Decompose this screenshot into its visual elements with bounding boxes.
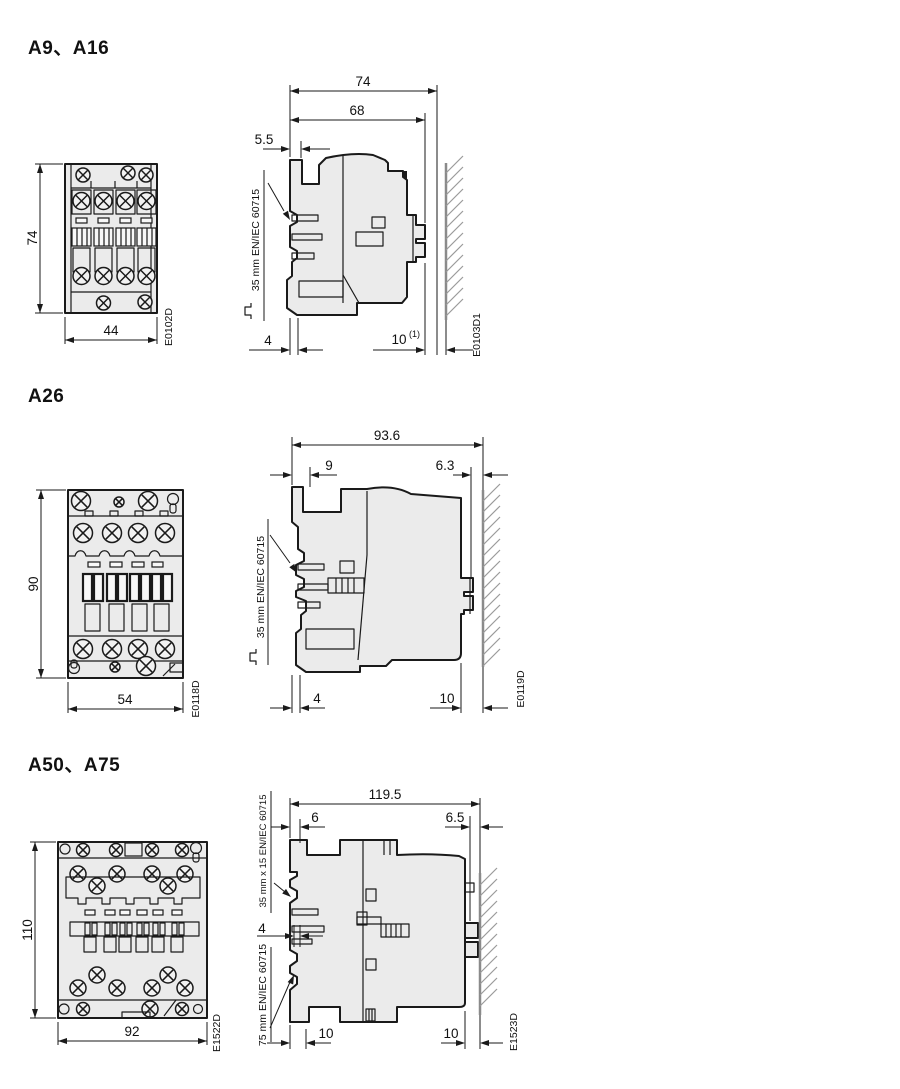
wall-clearance-dimension: 10 bbox=[430, 691, 508, 711]
bottom-front-dimension: 4 bbox=[270, 691, 325, 711]
side-view-a50-a75: 119.5 6 6.5 4 35 mm x 15 EN/IEC 60715 75… bbox=[245, 785, 540, 1085]
dim-bottom-front: 4 bbox=[264, 333, 272, 348]
mounting-wall bbox=[483, 484, 500, 667]
front-height-dimension: 110 bbox=[20, 842, 56, 1018]
din-rail-symbol bbox=[245, 303, 251, 319]
dim-claw-offset: 4 bbox=[258, 921, 266, 936]
front-tab-dimension: 9 bbox=[270, 458, 337, 478]
front-tab-dimension: 6 bbox=[271, 810, 325, 830]
dim-front-width: 44 bbox=[103, 323, 119, 338]
drawing-id-label: E1523D bbox=[508, 1013, 520, 1051]
dim-front-width: 92 bbox=[124, 1024, 139, 1039]
overall-depth-dimension: 119.5 bbox=[290, 787, 480, 807]
dim-front-height: 90 bbox=[26, 576, 41, 591]
dim-body-depth: 68 bbox=[349, 103, 364, 118]
contactor-front-body bbox=[65, 164, 157, 313]
din-rail-top-callout: 35 mm x 15 EN/IEC 60715 bbox=[258, 791, 291, 913]
front-view-a50-a75: 110 92 E1522D bbox=[22, 828, 232, 1068]
rear-offset-dimension: 6.3 bbox=[436, 458, 508, 478]
side-view-a9-a16: 74 68 5.5 35 mm EN/IEC 60715 4 10 bbox=[235, 65, 500, 365]
front-view-a26: 90 54 E0118D bbox=[28, 478, 213, 718]
drawing-id-label: E0103D1 bbox=[471, 313, 483, 357]
dim-bottom-front: 4 bbox=[313, 691, 321, 706]
wall-clearance-dimension: 10 bbox=[441, 1026, 503, 1046]
bottom-front-dimension: 4 bbox=[249, 333, 323, 353]
rear-offset-dimension: 6.5 bbox=[445, 810, 503, 830]
drawing-id-label: E0102D bbox=[163, 308, 175, 346]
front-width-dimension: 92 bbox=[58, 1022, 207, 1045]
dim-rear-offset: 6.3 bbox=[436, 458, 455, 473]
mounting-wall bbox=[446, 156, 463, 320]
overall-depth-dimension: 93.6 bbox=[292, 428, 483, 448]
dim-front-tab: 6 bbox=[311, 810, 319, 825]
din-rail-bottom-label: 75 mm EN/IEC 60715 bbox=[257, 944, 269, 1046]
section-title-a9-a16: A9、A16 bbox=[28, 33, 109, 60]
dim-front-height: 110 bbox=[20, 919, 35, 941]
front-height-dimension: 74 bbox=[25, 164, 63, 313]
dimension-drawings-page: A9、A16 bbox=[0, 0, 900, 1089]
dim-overall-depth: 93.6 bbox=[374, 428, 400, 443]
drawing-id-label: E0119D bbox=[515, 670, 527, 708]
contactor-side-body bbox=[287, 154, 425, 315]
dim-front-tab: 5.5 bbox=[255, 132, 274, 147]
contactor-side-body bbox=[290, 840, 478, 1022]
dim-bottom-front-clearance: 10 bbox=[318, 1026, 333, 1041]
overall-depth-dimension: 74 bbox=[290, 74, 437, 94]
din-rail-label: 35 mm EN/IEC 60715 bbox=[255, 536, 267, 638]
dim-front-tab: 9 bbox=[325, 458, 333, 473]
section-title-a26: A26 bbox=[28, 386, 64, 408]
bottom-front-clearance-dimension: 10 bbox=[267, 1026, 334, 1046]
contactor-side-body bbox=[292, 487, 473, 672]
din-rail-callout: 35 mm EN/IEC 60715 bbox=[245, 170, 290, 321]
dim-overall-depth: 119.5 bbox=[369, 787, 402, 802]
dim-wall-clearance: 10 bbox=[439, 691, 454, 706]
drawing-id-label: E0118D bbox=[190, 680, 202, 718]
din-rail-bottom-callout: 75 mm EN/IEC 60715 bbox=[257, 944, 294, 1046]
din-rail-top-label: 35 mm x 15 EN/IEC 60715 bbox=[258, 795, 269, 908]
dim-front-width: 54 bbox=[117, 692, 133, 707]
din-rail-callout: 35 mm EN/IEC 60715 bbox=[250, 519, 297, 665]
din-rail-symbol bbox=[250, 649, 256, 665]
rail-clip bbox=[465, 923, 478, 938]
front-tab-dimension: 5.5 bbox=[255, 132, 330, 152]
front-width-dimension: 44 bbox=[65, 317, 157, 344]
front-height-dimension: 90 bbox=[26, 490, 66, 678]
front-view-a9-a16: 74 44 E0102D bbox=[25, 148, 190, 363]
dim-overall-depth: 74 bbox=[355, 74, 371, 89]
contactor-front-body bbox=[68, 490, 183, 678]
drawing-id-label: E1522D bbox=[211, 1014, 223, 1052]
front-width-dimension: 54 bbox=[68, 682, 183, 713]
side-view-a26: 93.6 9 6.3 35 mm EN/IEC 60715 4 10 bbox=[240, 415, 540, 715]
din-rail-label: 35 mm EN/IEC 60715 bbox=[250, 189, 262, 291]
dim-wall-clearance: 10 bbox=[391, 332, 406, 347]
wall-clearance-dimension: 10 (1) bbox=[373, 329, 473, 353]
dim-wall-clearance: 10 bbox=[443, 1026, 458, 1041]
mounting-wall bbox=[480, 868, 497, 1015]
body-depth-dimension: 68 bbox=[290, 103, 425, 123]
dim-rear-offset: 6.5 bbox=[446, 810, 465, 825]
contactor-front-body bbox=[58, 842, 207, 1018]
rail-clip bbox=[465, 942, 478, 957]
dim-wall-clearance-note: (1) bbox=[409, 329, 420, 339]
dim-front-height: 74 bbox=[25, 230, 40, 246]
section-title-a50-a75: A50、A75 bbox=[28, 750, 120, 777]
